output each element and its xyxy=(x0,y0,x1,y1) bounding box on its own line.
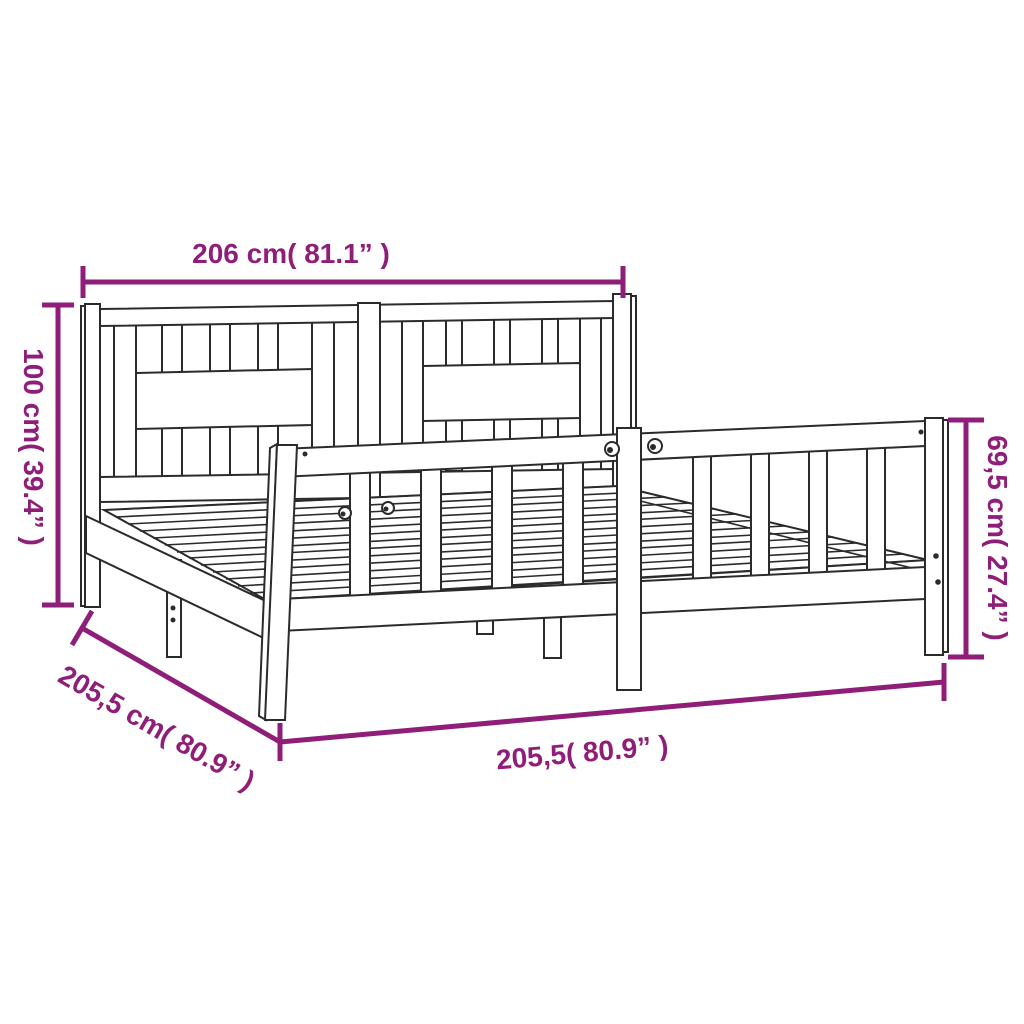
diagonal-length-label: 205,5 cm( 80.9” ) xyxy=(53,659,260,796)
screw-head-dot xyxy=(341,512,346,517)
footboard-spindle xyxy=(809,446,827,580)
headboard-cross-band xyxy=(136,369,312,429)
screw-dot xyxy=(933,553,939,559)
dimension-line-top-width xyxy=(83,266,623,298)
top-width-label: 206 cm( 81.1” ) xyxy=(192,238,390,269)
screw-head-dot xyxy=(384,507,389,512)
headboard-slat xyxy=(114,322,136,478)
footboard-right-post-side xyxy=(943,420,948,652)
footboard-spindle xyxy=(421,462,441,600)
bed-frame-drawing xyxy=(81,294,948,720)
screw-dot xyxy=(919,430,924,435)
bed-frame-dimension-diagram: 206 cm( 81.1” ) 100 cm( 39.4” ) 69,5 cm(… xyxy=(0,0,1024,1024)
dimension-diagram-page: 206 cm( 81.1” ) 100 cm( 39.4” ) 69,5 cm(… xyxy=(0,0,1024,1024)
footboard-spindle xyxy=(492,459,512,596)
headboard-cross-band xyxy=(423,363,580,421)
footboard-spindle xyxy=(693,451,711,586)
screw-head-dot xyxy=(650,444,656,450)
footboard-middle-post xyxy=(617,428,641,690)
dimension-line-right-height xyxy=(948,420,984,657)
headboard-left-post xyxy=(85,304,100,607)
bottom-length-label: 205,5( 80.9” ) xyxy=(495,730,670,776)
screw-dot xyxy=(935,579,941,585)
screw-dot xyxy=(171,618,176,623)
screw-head-dot xyxy=(607,447,613,453)
footboard-spindle xyxy=(350,466,370,603)
footboard-spindle xyxy=(563,456,583,593)
screw-dot xyxy=(303,452,308,457)
footboard-right-post xyxy=(925,418,943,655)
screw-dot xyxy=(171,606,176,611)
left-height-label: 100 cm( 39.4” ) xyxy=(18,348,49,546)
footboard-spindle xyxy=(867,444,885,577)
footboard-spindle xyxy=(751,449,769,583)
right-height-label: 69,5 cm( 27.4” ) xyxy=(982,435,1013,640)
headboard-top-rail xyxy=(100,301,613,326)
